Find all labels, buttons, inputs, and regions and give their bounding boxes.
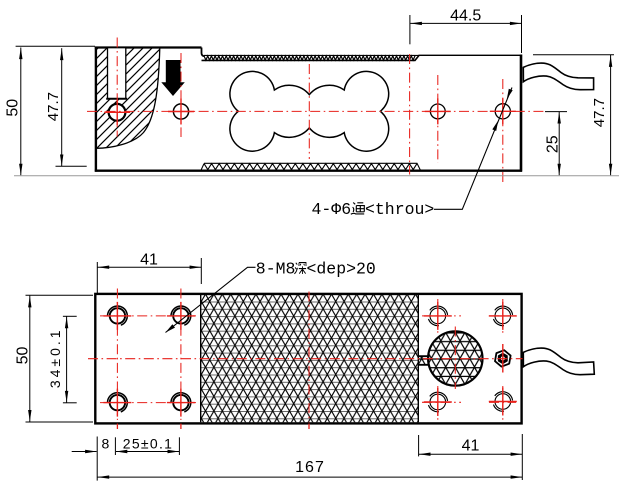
svg-text:8-M8: 8-M8	[256, 260, 296, 279]
svg-text:25±0.1: 25±0.1	[123, 435, 174, 451]
svg-text:47.7: 47.7	[591, 98, 608, 127]
svg-text:50: 50	[15, 347, 32, 365]
svg-text:41: 41	[462, 438, 480, 455]
svg-text:<dep>20: <dep>20	[307, 260, 376, 279]
svg-text:34±0.1: 34±0.1	[47, 327, 63, 388]
svg-text:44.5: 44.5	[450, 8, 481, 25]
svg-text:47.7: 47.7	[45, 92, 62, 121]
svg-text:4-Φ6: 4-Φ6	[312, 200, 352, 219]
svg-text:<throu>: <throu>	[365, 200, 434, 219]
svg-text:41: 41	[140, 251, 158, 268]
svg-text:50: 50	[5, 99, 22, 117]
svg-text:167: 167	[295, 459, 325, 476]
svg-text:25: 25	[544, 135, 561, 153]
svg-text:8: 8	[102, 435, 110, 451]
